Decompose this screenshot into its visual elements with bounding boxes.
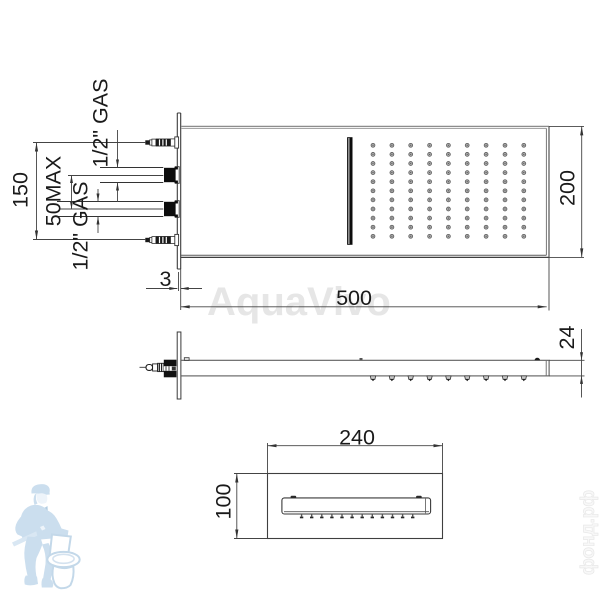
svg-text:150: 150 (9, 172, 33, 208)
svg-text:3: 3 (160, 267, 172, 291)
svg-text:240: 240 (339, 426, 375, 450)
svg-text:50MAX: 50MAX (42, 156, 66, 227)
svg-text:фонд.рф: фонд.рф (578, 490, 599, 575)
svg-text:100: 100 (212, 484, 236, 520)
svg-text:200: 200 (556, 170, 580, 206)
svg-text:24: 24 (555, 326, 579, 350)
svg-text:1/2" GAS: 1/2" GAS (89, 79, 113, 168)
svg-text:500: 500 (336, 286, 372, 310)
svg-text:1/2" GAS: 1/2" GAS (69, 182, 93, 271)
